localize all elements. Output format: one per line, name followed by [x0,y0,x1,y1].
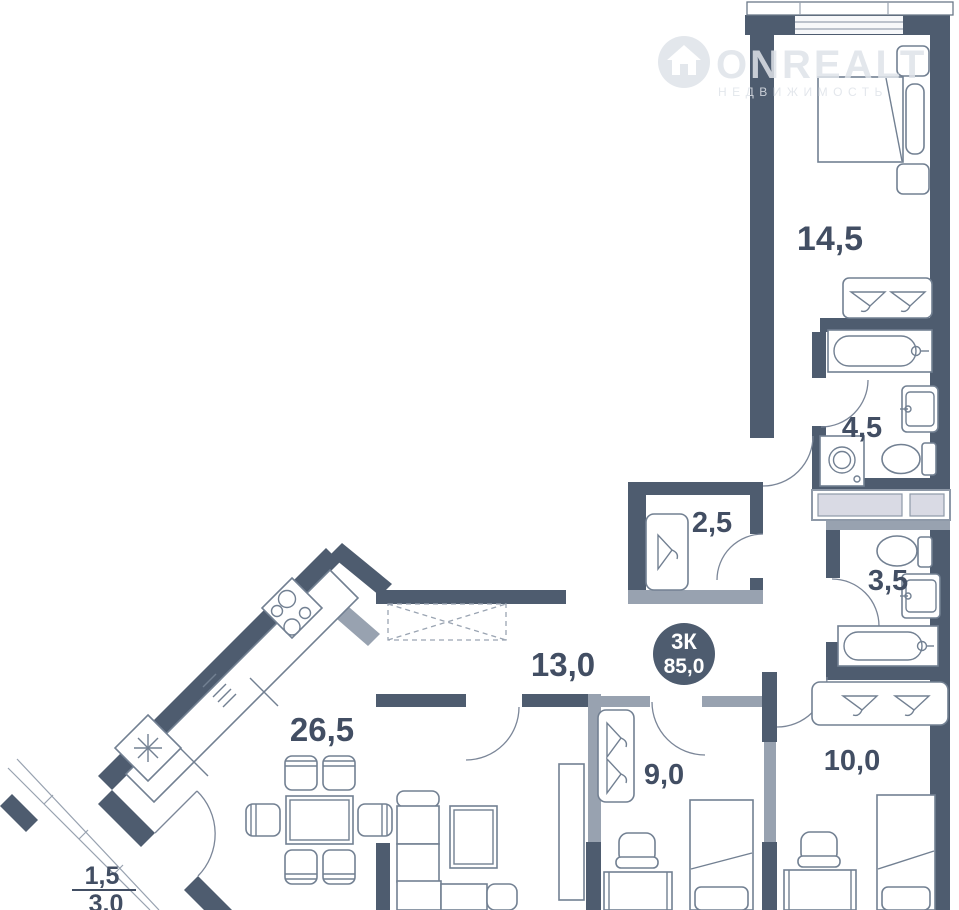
area-label-closet: 2,5 [692,507,732,539]
chair [323,850,355,884]
balcony-door-arc [197,791,215,876]
parapet [747,2,953,15]
nightstand [897,164,929,194]
bathtub-large [828,330,932,372]
area-label-room9: 9,0 [644,759,684,791]
wardrobe-room9 [598,710,634,802]
wardrobe-closet [646,514,688,590]
area-label-balcony-full: 3,0 [89,890,124,910]
area-label-bedroom: 14,5 [797,220,863,258]
area-label-bathroom-small: 3,5 [868,565,908,597]
furniture [115,46,948,910]
chair [285,850,317,884]
wardrobe-room10 [812,682,948,725]
vent-shafts [812,490,950,520]
desk-chair [616,833,658,868]
bed-room10 [877,795,935,910]
dining-table [286,796,353,844]
desk-chair [798,832,840,867]
total-area: 85,0 [664,655,705,678]
bedroom-door-arc [763,436,813,486]
sink [900,386,938,432]
apartment-type: 3К [671,629,697,654]
wardrobe-bedroom [843,278,932,318]
area-label-hallway: 13,0 [531,646,595,683]
watermark-subtitle: НЕДВИЖИМОСТЬ [718,85,888,99]
watermark: ONREALT НЕДВИЖИМОСТЬ [658,36,927,99]
desk-room9 [604,872,672,910]
toilet [882,443,936,475]
desk-room10 [784,870,856,910]
living-door-arc [466,707,519,760]
closet-door-arc [717,534,763,580]
watermark-brand: ONREALT [716,43,927,87]
chair [323,756,355,790]
bathtub-small [838,626,938,666]
area-label-room10: 10,0 [824,745,880,777]
hall-niche [388,604,506,640]
chair [246,804,280,836]
floorplan-svg: 14,5 4,5 2,5 3,5 13,0 26,5 9,0 10,0 1,5 … [0,0,959,910]
tall-cabinet [559,764,584,900]
room9-door-arc [652,702,705,755]
area-label-living: 26,5 [290,711,354,748]
toilet [877,536,932,567]
area-label-balcony-coef: 1,5 [85,862,120,890]
chair [285,756,317,790]
area-label-bathroom-large: 4,5 [842,412,882,444]
chair [358,804,392,836]
total-area-badge: 3К 85,0 [653,623,715,685]
coffee-table [450,806,497,868]
bed-room9 [690,800,753,910]
bedroom-window [795,16,903,34]
floorplan: 14,5 4,5 2,5 3,5 13,0 26,5 9,0 10,0 1,5 … [0,0,959,910]
